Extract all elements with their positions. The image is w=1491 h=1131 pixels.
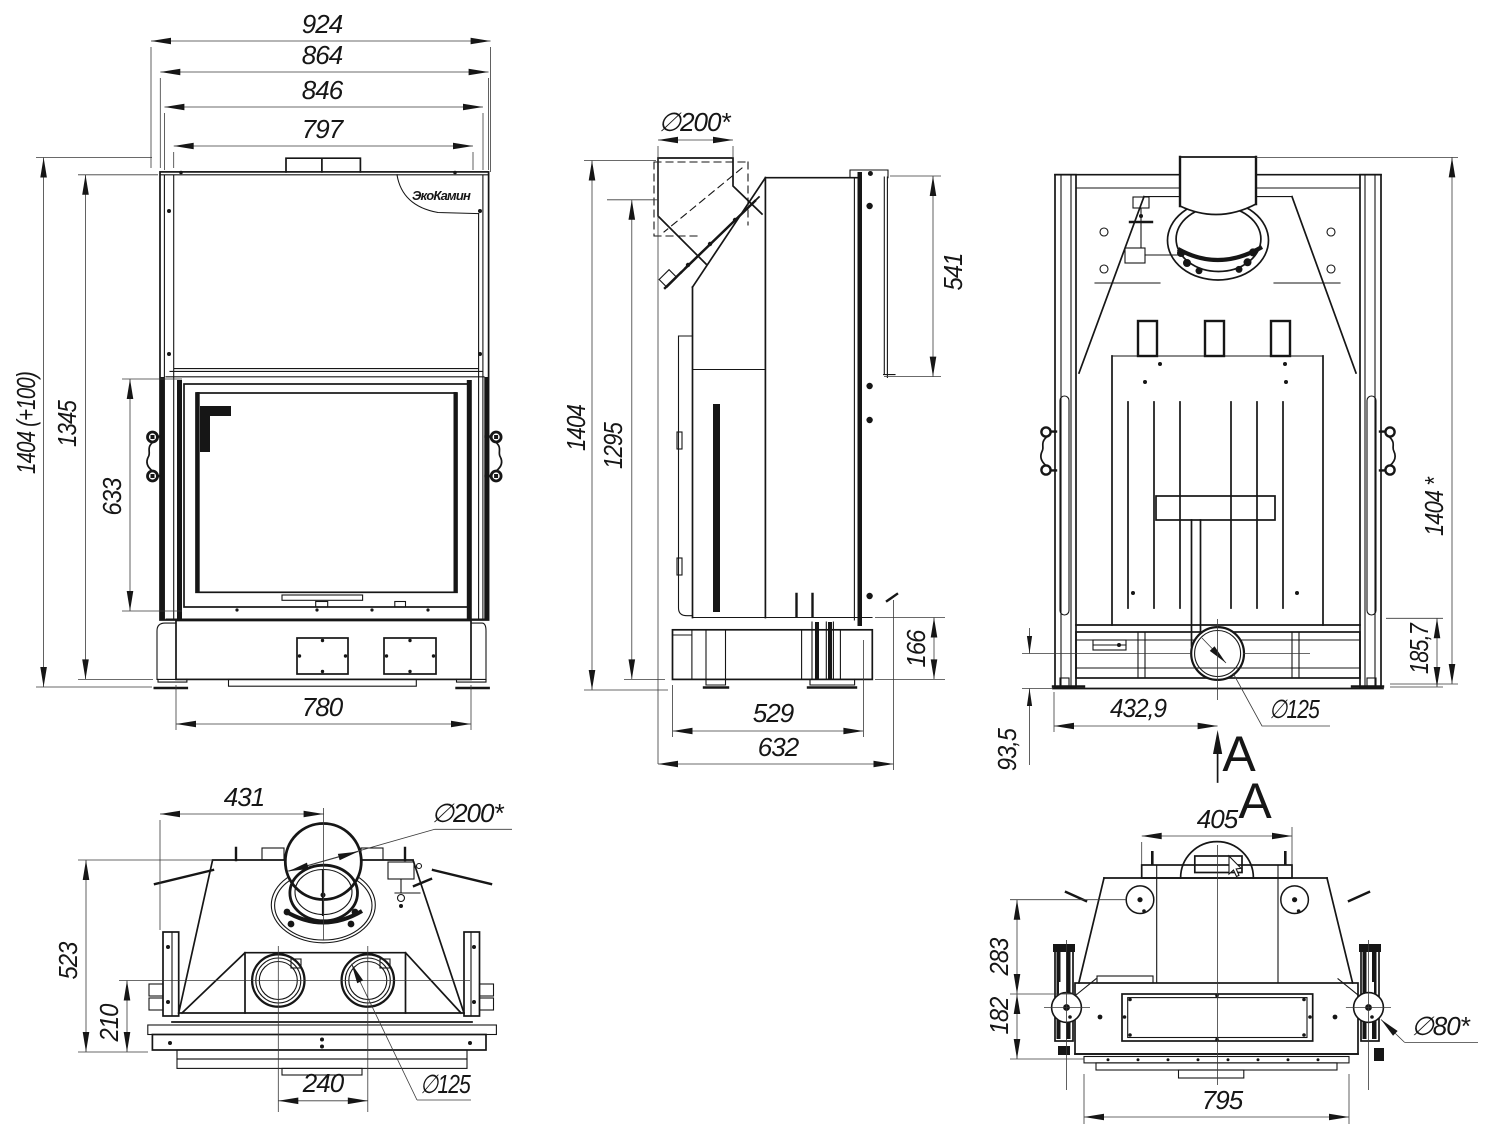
svg-text:∅200*: ∅200* [431,798,504,828]
svg-text:ЭкоКамин: ЭкоКамин [412,188,471,203]
svg-text:∅80*: ∅80* [1411,1011,1471,1041]
svg-text:924: 924 [302,9,343,39]
svg-text:∅125: ∅125 [420,1069,471,1099]
svg-text:846: 846 [302,75,344,105]
svg-text:431: 431 [224,782,264,812]
svg-text:780: 780 [302,692,344,722]
svg-text:523: 523 [53,941,83,979]
svg-text:541: 541 [938,254,968,291]
svg-text:633: 633 [97,477,127,515]
svg-text:∅200*: ∅200* [658,107,731,137]
svg-text:∅125: ∅125 [1269,694,1320,724]
svg-text:1404 (+100): 1404 (+100) [11,372,41,474]
svg-text:1404: 1404 [561,405,591,451]
svg-text:1345: 1345 [52,400,82,447]
svg-text:632: 632 [758,732,800,762]
svg-text:A: A [1238,773,1272,829]
svg-text:93,5: 93,5 [992,728,1022,771]
svg-text:185,7: 185,7 [1404,622,1434,674]
svg-text:432,9: 432,9 [1110,693,1166,723]
svg-text:283: 283 [984,937,1014,976]
svg-text:240: 240 [302,1068,345,1098]
svg-text:864: 864 [302,40,343,70]
svg-text:1295: 1295 [598,422,628,469]
svg-text:210: 210 [94,1003,124,1042]
svg-text:166: 166 [901,629,931,667]
svg-text:797: 797 [302,114,345,144]
svg-text:529: 529 [753,698,794,728]
svg-text:405: 405 [1197,804,1239,834]
svg-text:182: 182 [984,996,1014,1034]
svg-text:1404 *: 1404 * [1419,476,1449,536]
svg-text:795: 795 [1202,1085,1244,1115]
